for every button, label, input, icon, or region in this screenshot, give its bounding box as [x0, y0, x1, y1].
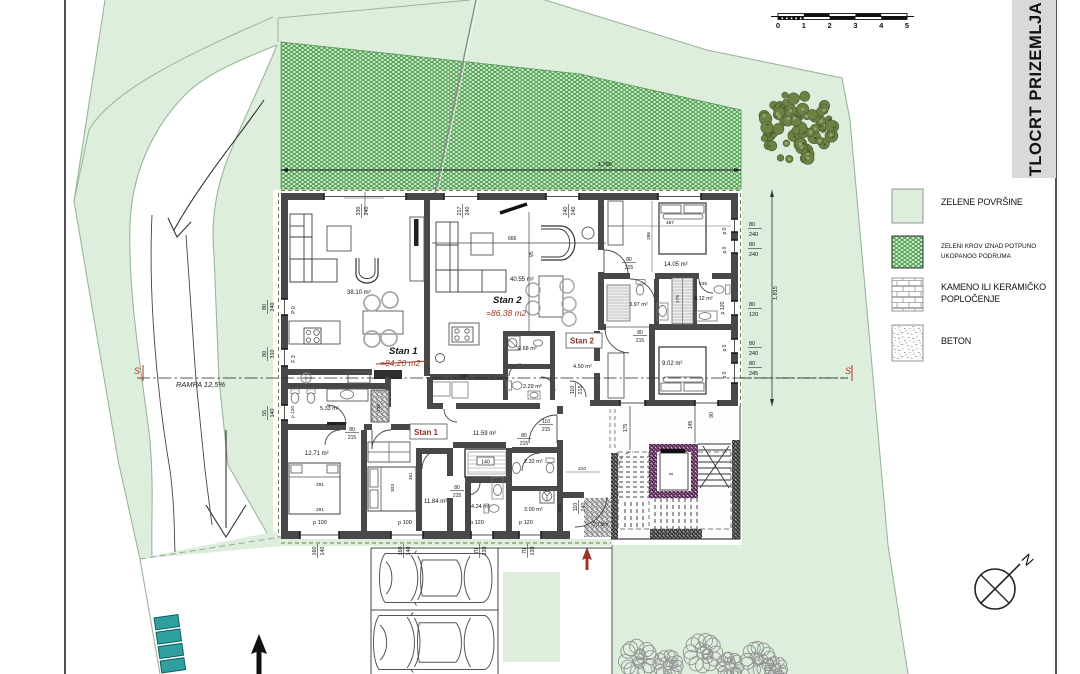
- svg-text:5.33 m²: 5.33 m²: [320, 406, 339, 412]
- svg-text:240: 240: [563, 207, 569, 216]
- svg-text:11.84 m²: 11.84 m²: [424, 499, 447, 505]
- svg-text:Stan 1: Stan 1: [414, 428, 439, 437]
- svg-text:160: 160: [398, 547, 404, 556]
- svg-text:TLOCRT PRIZEMLJA: TLOCRT PRIZEMLJA: [1027, 2, 1045, 177]
- svg-text:POPLOČENJE: POPLOČENJE: [941, 294, 1000, 304]
- svg-text:487: 487: [666, 220, 674, 226]
- svg-text:215: 215: [625, 265, 634, 271]
- svg-text:80: 80: [349, 427, 355, 433]
- svg-text:80: 80: [626, 257, 632, 263]
- svg-text:120: 120: [530, 547, 536, 556]
- svg-text:2,73m²: 2,73m²: [593, 522, 609, 528]
- svg-text:240: 240: [749, 252, 758, 258]
- svg-text:14.05 m²: 14.05 m²: [664, 262, 688, 268]
- svg-text:0: 0: [776, 21, 780, 30]
- svg-text:80: 80: [262, 304, 268, 310]
- svg-text:5: 5: [905, 21, 909, 30]
- svg-text:p 0: p 0: [722, 344, 728, 351]
- svg-text:RAMPA 12,5%: RAMPA 12,5%: [176, 380, 226, 389]
- svg-text:291: 291: [316, 507, 324, 513]
- svg-text:Stan 1: Stan 1: [389, 346, 418, 357]
- svg-text:175: 175: [675, 295, 681, 303]
- svg-text:ZELENI KROV IZNAD POTPUNO: ZELENI KROV IZNAD POTPUNO: [941, 243, 1036, 250]
- svg-text:215: 215: [348, 435, 357, 441]
- svg-text:80: 80: [749, 222, 755, 228]
- svg-text:9.02 m²: 9.02 m²: [662, 361, 682, 367]
- svg-text:=86,38 m2: =86,38 m2: [486, 308, 527, 318]
- svg-text:215: 215: [542, 427, 551, 433]
- svg-text:p 0: p 0: [722, 246, 728, 253]
- svg-text:2: 2: [828, 21, 832, 30]
- svg-text:P 0: P 0: [291, 306, 297, 314]
- svg-text:70: 70: [522, 548, 528, 554]
- svg-text:Stan 2: Stan 2: [570, 337, 595, 346]
- svg-text:140: 140: [270, 409, 276, 418]
- svg-text:4.50 m²: 4.50 m²: [573, 364, 592, 370]
- svg-text:80: 80: [637, 330, 643, 336]
- svg-text:80: 80: [262, 351, 268, 357]
- svg-text:215: 215: [578, 386, 584, 395]
- svg-text:80: 80: [454, 485, 460, 491]
- svg-text:3.97 m²: 3.97 m²: [629, 302, 648, 308]
- svg-text:140: 140: [320, 547, 326, 556]
- svg-text:8: 8: [669, 472, 675, 475]
- svg-text:175: 175: [623, 424, 629, 433]
- svg-text:145: 145: [688, 421, 694, 430]
- svg-text:217: 217: [457, 207, 463, 216]
- svg-text:120: 120: [482, 547, 488, 556]
- svg-text:11.59 m²: 11.59 m²: [473, 431, 496, 437]
- svg-text:90: 90: [709, 412, 715, 418]
- svg-text:4.12 m²: 4.12 m²: [694, 296, 713, 302]
- svg-text:215: 215: [520, 441, 529, 447]
- svg-text:55: 55: [262, 410, 268, 416]
- svg-text:303: 303: [390, 484, 396, 492]
- svg-text:240: 240: [749, 232, 758, 238]
- svg-text:40.55 m²: 40.55 m²: [510, 277, 534, 283]
- svg-text:110: 110: [570, 386, 576, 395]
- svg-text:4.24 m²: 4.24 m²: [471, 504, 490, 510]
- svg-text:70: 70: [474, 548, 480, 554]
- svg-text:p 120: p 120: [290, 406, 296, 418]
- svg-text:240: 240: [270, 303, 276, 312]
- svg-text:p 100: p 100: [313, 520, 327, 526]
- svg-text:330: 330: [356, 207, 362, 216]
- svg-text:310: 310: [270, 350, 276, 359]
- svg-text:95: 95: [529, 251, 535, 257]
- svg-text:p 120: p 120: [470, 520, 484, 526]
- svg-text:2.32 m²: 2.32 m²: [524, 459, 543, 465]
- svg-text:215: 215: [453, 493, 462, 499]
- svg-text:BETON: BETON: [941, 336, 971, 346]
- svg-text:140: 140: [406, 547, 412, 556]
- svg-text:p 120: p 120: [720, 301, 726, 314]
- svg-text:110: 110: [542, 419, 550, 425]
- svg-text:3: 3: [853, 21, 857, 30]
- svg-text:12.71 m²: 12.71 m²: [305, 451, 329, 457]
- svg-text:235: 235: [699, 281, 707, 287]
- svg-text:1,815: 1,815: [773, 286, 779, 300]
- svg-text:240: 240: [364, 207, 370, 216]
- svg-text:2.29 m²: 2.29 m²: [523, 384, 542, 390]
- svg-text:140: 140: [481, 460, 490, 466]
- svg-text:F 3: F 3: [291, 355, 297, 362]
- svg-text:152: 152: [557, 504, 563, 512]
- svg-text:UKOPANOG PODRUMA: UKOPANOG PODRUMA: [941, 253, 1012, 260]
- svg-text:80: 80: [749, 242, 755, 248]
- svg-text:240: 240: [749, 351, 758, 357]
- svg-text:p 120: p 120: [519, 520, 533, 526]
- svg-text:KAMENO ILI KERAMIČKO: KAMENO ILI KERAMIČKO: [941, 282, 1046, 292]
- svg-text:245: 245: [749, 371, 758, 377]
- svg-text:110: 110: [573, 503, 579, 512]
- svg-text:S: S: [134, 366, 140, 376]
- svg-text:ZELENE POVRŠINE: ZELENE POVRŠINE: [941, 197, 1023, 207]
- svg-text:666: 666: [508, 236, 517, 242]
- svg-text:240: 240: [581, 503, 587, 512]
- svg-text:2.68 m²: 2.68 m²: [518, 346, 537, 352]
- svg-text:1,799: 1,799: [598, 162, 612, 168]
- svg-text:361: 361: [408, 472, 413, 480]
- svg-text:291: 291: [316, 482, 324, 488]
- svg-text:38.10 m²: 38.10 m²: [347, 290, 371, 296]
- svg-text:1: 1: [802, 21, 806, 30]
- svg-text:p 0: p 0: [722, 371, 728, 378]
- svg-text:80: 80: [749, 341, 755, 347]
- svg-text:210: 210: [578, 466, 586, 472]
- svg-text:120: 120: [749, 312, 758, 318]
- svg-text:3.00 m²: 3.00 m²: [524, 507, 543, 513]
- svg-text:80: 80: [749, 302, 755, 308]
- svg-text:136: 136: [376, 404, 382, 412]
- svg-text:286: 286: [646, 232, 652, 240]
- svg-text:160: 160: [312, 547, 318, 556]
- svg-text:p 0: p 0: [722, 227, 728, 234]
- svg-text:240: 240: [465, 207, 471, 216]
- svg-text:S: S: [845, 366, 851, 376]
- svg-text:p 100: p 100: [398, 520, 412, 526]
- svg-text:240: 240: [571, 207, 577, 216]
- svg-text:Stan 2: Stan 2: [493, 295, 522, 306]
- svg-text:80: 80: [521, 433, 527, 439]
- svg-text:215: 215: [636, 338, 645, 344]
- svg-text:80: 80: [749, 361, 755, 367]
